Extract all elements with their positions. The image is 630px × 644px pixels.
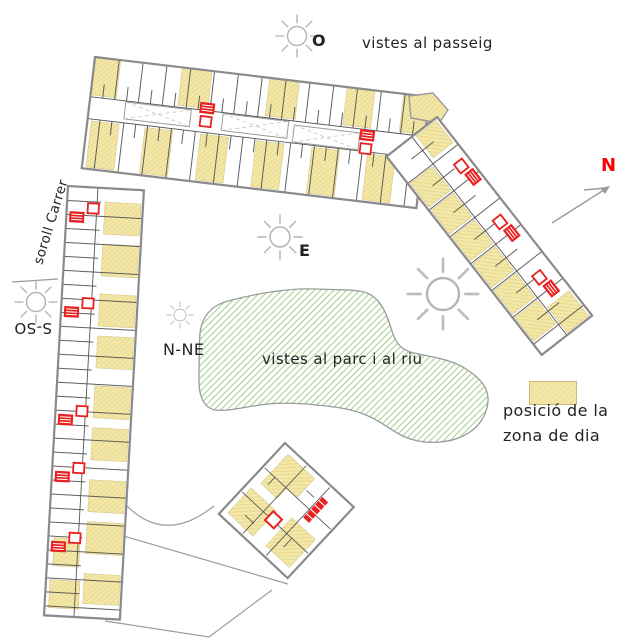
west-label: O xyxy=(312,31,326,50)
sso-label: S-SO xyxy=(14,319,52,337)
legend-text-line1: posició de la xyxy=(503,401,608,420)
nne-label: N-NE xyxy=(163,340,204,359)
views-park-river-label: vistes al parc i al riu xyxy=(262,350,422,368)
legend-text-line2: zona de dia xyxy=(503,426,600,445)
east-label: E xyxy=(299,241,310,260)
views-promenade-label: vistes al passeig xyxy=(362,34,493,52)
site-plan-canvas xyxy=(0,0,630,644)
north-label: N xyxy=(601,155,616,176)
site-plan: O vistes al passeig N E N-NE S-SO soroll… xyxy=(0,0,630,644)
